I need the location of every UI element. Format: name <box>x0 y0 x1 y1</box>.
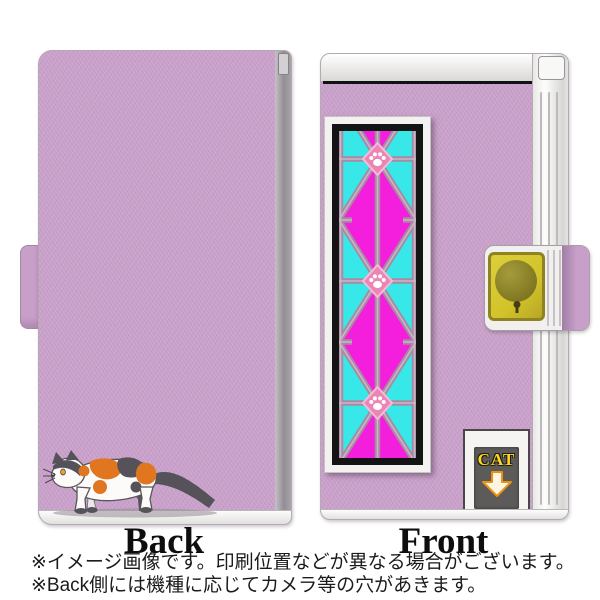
spine-notch <box>278 53 289 75</box>
spine-ridge <box>547 250 549 326</box>
cat-door: CAT <box>463 429 530 513</box>
spine-ridge <box>553 250 555 326</box>
stained-glass-border <box>332 124 423 465</box>
cat-eye <box>61 469 66 475</box>
spine-top-tab <box>538 56 565 80</box>
product-image: CAT Back Front ※イメージ画像です。印刷位置などが異なる場合がござ… <box>0 0 600 600</box>
stained-glass-pattern <box>339 131 416 458</box>
caption-notes: ※イメージ画像です。印刷位置などが異なる場合がございます。 ※Back側には機種… <box>31 551 597 597</box>
keyhole-icon <box>513 301 520 313</box>
front-bottom-edge <box>321 509 568 520</box>
cat-ear-back <box>66 450 79 460</box>
calico-cat-illustration <box>43 447 223 519</box>
front-top-edge <box>321 54 568 81</box>
cat-door-panel: CAT <box>474 447 519 509</box>
clasp-plate <box>488 252 545 321</box>
strap-end <box>562 246 589 330</box>
cat-hind-leg-near <box>140 487 153 510</box>
cat-head-patch <box>79 466 90 477</box>
down-arrow-icon <box>482 471 512 497</box>
cat-patch-rump <box>136 463 156 485</box>
back-case <box>38 50 292 525</box>
magnet-button <box>495 260 537 302</box>
stained-glass-panel <box>324 116 431 473</box>
spine-ridge <box>559 250 561 326</box>
note-line-2: ※Back側には機種に応じてカメラ等の穴があきます。 <box>31 574 597 597</box>
cat-spot-side <box>93 480 107 494</box>
magnetic-clasp-strap <box>484 245 590 331</box>
front-accent-line <box>323 81 534 84</box>
cat-tail <box>147 472 215 508</box>
back-spine <box>275 51 291 524</box>
cat-door-label: CAT <box>474 450 519 470</box>
note-line-1: ※イメージ画像です。印刷位置などが異なる場合がございます。 <box>31 551 597 574</box>
